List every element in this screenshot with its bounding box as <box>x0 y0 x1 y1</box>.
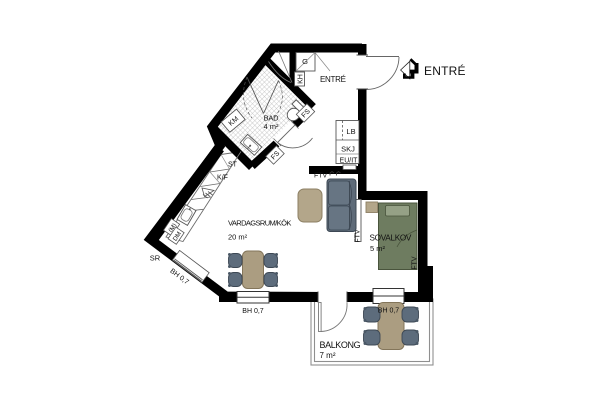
svg-text:VARDAGSRUM/KÖK: VARDAGSRUM/KÖK <box>228 219 291 228</box>
svg-text:BH 0,7: BH 0,7 <box>242 308 264 315</box>
svg-text:FTV: FTV <box>314 173 328 180</box>
svg-text:ENTRÉ: ENTRÉ <box>320 75 346 84</box>
svg-text:4 m²: 4 m² <box>264 122 280 131</box>
svg-text:SOVALKOV: SOVALKOV <box>370 234 412 243</box>
svg-text:ST: ST <box>228 162 238 169</box>
svg-text:G: G <box>302 57 308 66</box>
svg-text:20 m²: 20 m² <box>228 233 248 242</box>
svg-text:BALKONG: BALKONG <box>320 340 361 350</box>
svg-text:5 m²: 5 m² <box>370 244 386 253</box>
svg-text:BH 0,7: BH 0,7 <box>378 308 400 315</box>
svg-text:SR: SR <box>150 254 161 263</box>
svg-text:7 m²: 7 m² <box>320 351 336 360</box>
svg-text:SKJ: SKJ <box>341 145 355 154</box>
svg-text:LB: LB <box>346 127 355 136</box>
svg-text:FTV: FTV <box>412 256 419 270</box>
svg-text:KH: KH <box>297 74 304 84</box>
svg-text:K/F: K/F <box>217 175 228 182</box>
svg-text:EU/IT: EU/IT <box>340 158 359 165</box>
svg-text:ENTRÉ: ENTRÉ <box>424 63 466 78</box>
